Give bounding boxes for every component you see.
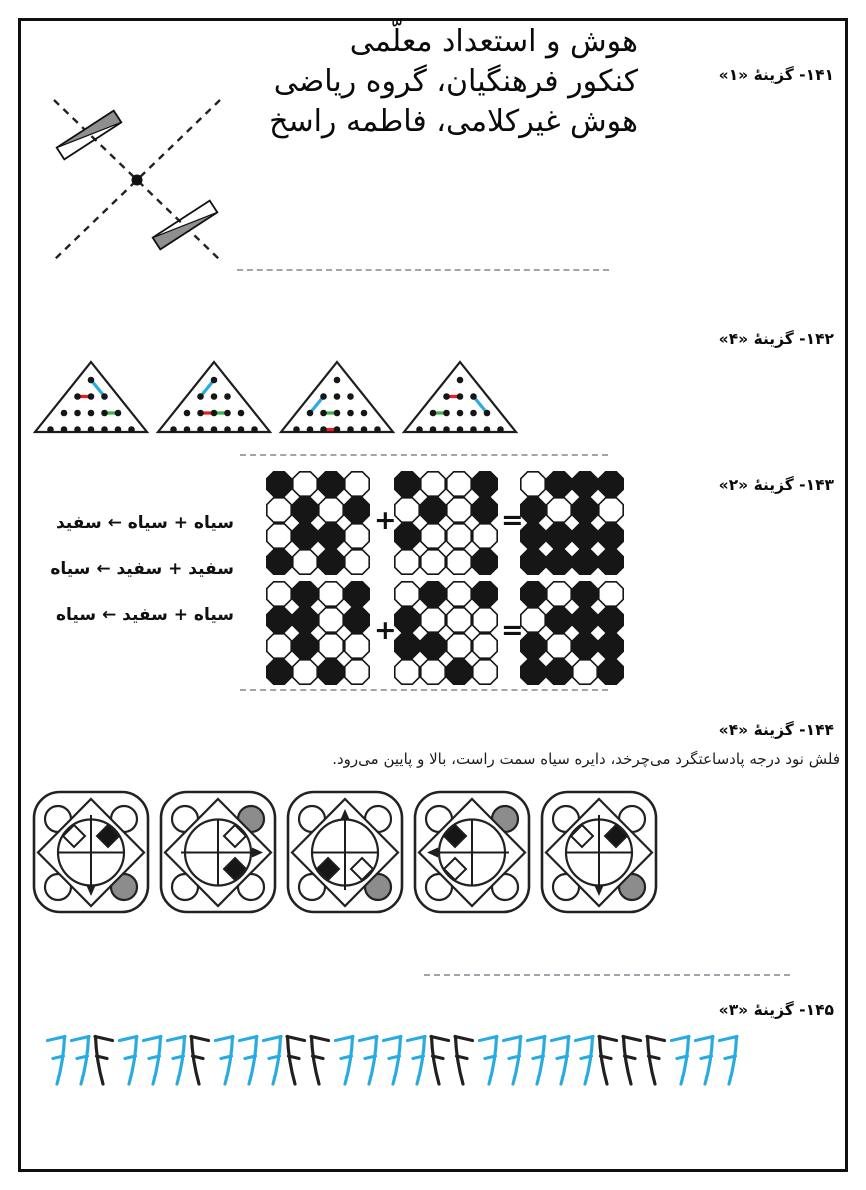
seven-glyph [236, 1027, 260, 1090]
q143-grid-row2-left [266, 581, 370, 685]
mirrored-seven-glyph [644, 1027, 668, 1090]
q143-grid-row1-left [266, 471, 370, 575]
separator-3 [240, 689, 608, 691]
seven-glyph [548, 1027, 572, 1090]
answer-label-144: ۱۴۴- گزینهٔ «۴» [719, 721, 834, 739]
seven-glyph [356, 1027, 380, 1090]
seven-glyph [404, 1027, 428, 1090]
q142-triangle [33, 358, 149, 436]
rule-line-3: سیاه + سفید ← سیاه [26, 604, 234, 626]
title-line-3: هوش غیرکلامی، فاطمه راسخ [198, 102, 638, 142]
rule-line-2: سفید + سفید ← سیاه [26, 558, 234, 580]
mirrored-seven-glyph [188, 1027, 212, 1090]
lower-blade [153, 201, 218, 250]
q143-grid-row1-middle [394, 471, 498, 575]
answer-label-145: ۱۴۵- گزینهٔ «۳» [719, 1001, 834, 1019]
upper-blade [57, 111, 122, 160]
seven-glyph [668, 1027, 692, 1090]
mirrored-seven-glyph [596, 1027, 620, 1090]
q144-explanation: فلش نود درجه پادساعتگرد می‌چرخد، دایره س… [310, 750, 840, 768]
rule-line-1: سیاه + سیاه ← سفید [26, 512, 234, 534]
title-line-1: هوش و استعداد معلّمی [198, 22, 638, 62]
q143-grid-row2-middle [394, 581, 498, 685]
q143-grid-row1-result [520, 471, 624, 575]
answer-label-142: ۱۴۲- گزینهٔ «۴» [719, 330, 834, 348]
seven-glyph [380, 1027, 404, 1090]
q144-panel [412, 789, 532, 915]
q144-panel [285, 789, 405, 915]
separator-4 [424, 974, 790, 976]
q144-panel [158, 789, 278, 915]
seven-glyph [260, 1027, 284, 1090]
seven-glyph [164, 1027, 188, 1090]
mirrored-seven-glyph [428, 1027, 452, 1090]
mirrored-seven-glyph [92, 1027, 116, 1090]
q144-panel-figures [31, 789, 659, 915]
seven-glyph [44, 1027, 68, 1090]
q142-triangle-figures [33, 358, 518, 436]
mirrored-seven-glyph [284, 1027, 308, 1090]
q142-triangle [402, 358, 518, 436]
seven-glyph [524, 1027, 548, 1090]
seven-glyph [140, 1027, 164, 1090]
mirrored-seven-glyph [620, 1027, 644, 1090]
q145-glyph-sequence [44, 1027, 740, 1090]
seven-glyph [332, 1027, 356, 1090]
mirrored-seven-glyph [452, 1027, 476, 1090]
seven-glyph [476, 1027, 500, 1090]
answer-key-page: هوش و استعداد معلّمی کنکور فرهنگیان، گرو… [0, 0, 866, 1190]
q144-panel [539, 789, 659, 915]
answer-label-143: ۱۴۳- گزینهٔ «۲» [719, 476, 834, 494]
seven-glyph [68, 1027, 92, 1090]
seven-glyph [572, 1027, 596, 1090]
title-line-2: کنکور فرهنگیان، گروه ریاضی [198, 62, 638, 102]
seven-glyph [116, 1027, 140, 1090]
q143-color-rules: سیاه + سیاه ← سفید سفید + سفید ← سیاه سی… [26, 512, 234, 650]
q143-grid-row2-result [520, 581, 624, 685]
q141-blade-rotation-figure [30, 88, 242, 266]
seven-glyph [500, 1027, 524, 1090]
separator-2 [240, 454, 608, 456]
mirrored-seven-glyph [308, 1027, 332, 1090]
page-title: هوش و استعداد معلّمی کنکور فرهنگیان، گرو… [198, 22, 638, 142]
q142-triangle [156, 358, 272, 436]
q144-panel [31, 789, 151, 915]
seven-glyph [716, 1027, 740, 1090]
seven-glyph [212, 1027, 236, 1090]
center-dot [132, 175, 143, 186]
answer-label-141: ۱۴۱- گزینهٔ «۱» [719, 66, 834, 84]
q142-triangle [279, 358, 395, 436]
separator-1 [237, 269, 609, 271]
seven-glyph [692, 1027, 716, 1090]
